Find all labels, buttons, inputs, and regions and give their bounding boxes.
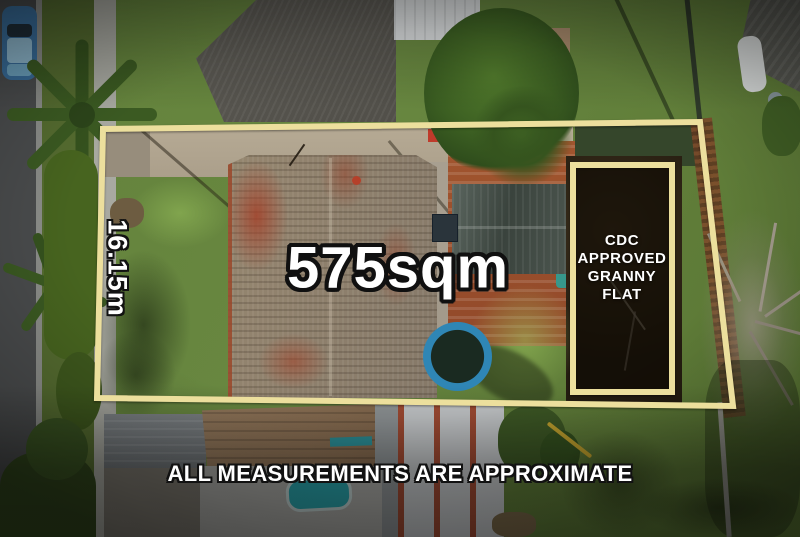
side-measurement-label: 16.15m xyxy=(102,219,133,317)
granny-flat-label-line: CDC xyxy=(578,232,667,250)
aerial-property-photo: 575sqm 16.15m CDC APPROVED GRANNY FLAT A… xyxy=(0,0,800,537)
granny-flat-label-line: APPROVED xyxy=(578,250,667,268)
area-label: 575sqm xyxy=(287,235,509,302)
granny-flat-label: CDC APPROVED GRANNY FLAT xyxy=(578,232,667,304)
granny-flat-label-line: FLAT xyxy=(578,286,667,304)
disclaimer-label: ALL MEASUREMENTS ARE APPROXIMATE xyxy=(167,461,632,487)
granny-flat-label-line: GRANNY xyxy=(578,268,667,286)
